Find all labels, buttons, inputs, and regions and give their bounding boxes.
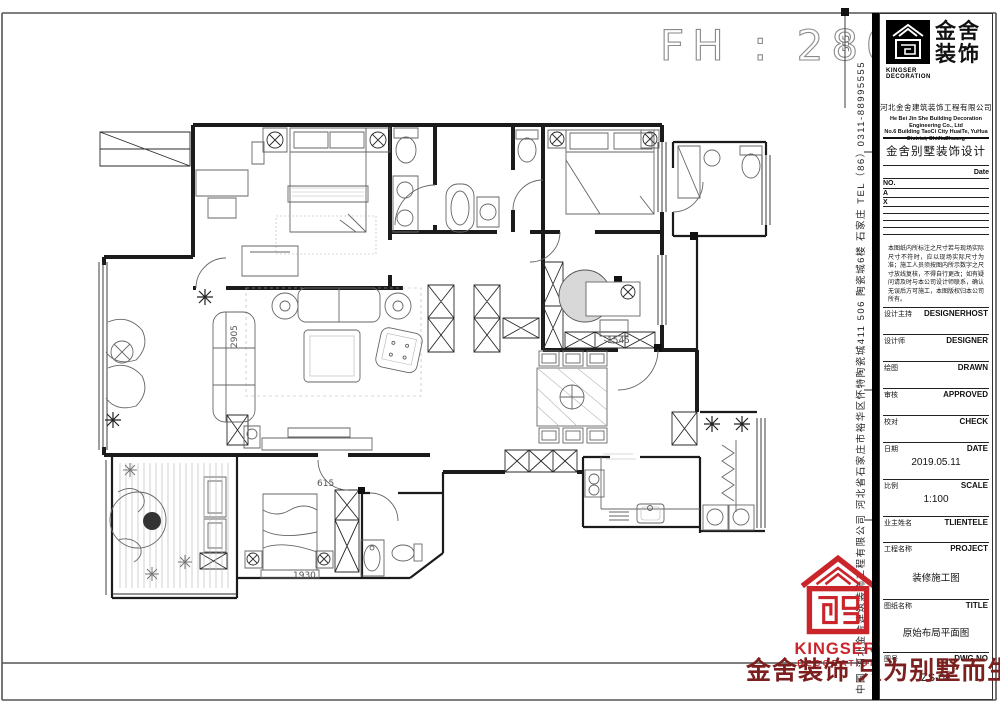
logo-cn-line2: 装饰 <box>935 43 981 66</box>
title-value: 原始布局平面图 <box>883 625 989 639</box>
row-date: 日期 DATE 2019.05.11 <box>883 442 989 479</box>
rev-a: A <box>883 190 888 197</box>
row-drawn: 绘图 DRAWN <box>883 361 989 388</box>
project-value: 装修施工图 <box>883 570 989 584</box>
row-clientele: 业主姓名 TLIENTELE <box>883 516 989 542</box>
company-name-en: He Bei Jin She Building Decoration Engin… <box>880 115 992 137</box>
date-word: Date <box>974 169 989 176</box>
drawing-sheet: FH : 2800 <box>0 0 1000 711</box>
title-block: 金舍 装饰 KINGSER DECORATION 河北金舍建筑装饰工程有限公司 … <box>879 13 993 700</box>
dim-1930: 1930 <box>293 571 316 581</box>
dim-1545: 1545 <box>607 336 630 346</box>
furniture <box>106 128 762 588</box>
row-scale: 比例 SCALE 1:100 <box>883 479 989 516</box>
row-title: 图纸名称 TITLE 原始布局平面图 <box>883 599 989 652</box>
row-check: 校对 CHECK <box>883 415 989 442</box>
dim-555: 555 <box>842 35 852 52</box>
logo-cn-line1: 金舍 <box>935 20 981 43</box>
dept-title: 金舍别墅装饰设计 <box>883 140 989 166</box>
date-value: 2019.05.11 <box>883 457 989 468</box>
row-project: 工程名称 PROJECT 装修施工图 <box>883 542 989 599</box>
logo-en-line2: DECORATION <box>886 74 931 80</box>
title-block-separator-bar <box>872 13 879 700</box>
company-name-cn: 河北金舍建筑装饰工程有限公司 <box>880 102 992 115</box>
scale-value: 1:100 <box>883 494 989 505</box>
row-approved: 审核 APPROVED <box>883 388 989 415</box>
rev-no: NO. <box>883 180 895 187</box>
rev-x: X <box>883 199 888 206</box>
row-designerhost: 设计主持 DESIGNERHOST <box>883 307 989 334</box>
kingser-seal-icon <box>886 20 930 64</box>
notes-text: 本图纸内所标注之尺寸若与现场实际尺寸不符时，应以现场实际尺寸为准；施工人员须按图… <box>880 241 992 307</box>
windows <box>99 132 770 595</box>
company-logo-block: 金舍 装饰 KINGSER DECORATION <box>880 14 992 102</box>
kingser-house-icon <box>795 552 881 636</box>
dim-2905: 2905 <box>230 325 240 348</box>
row-designer: 设计师 DESIGNER <box>883 334 989 361</box>
dim-615: 615 <box>317 479 334 489</box>
